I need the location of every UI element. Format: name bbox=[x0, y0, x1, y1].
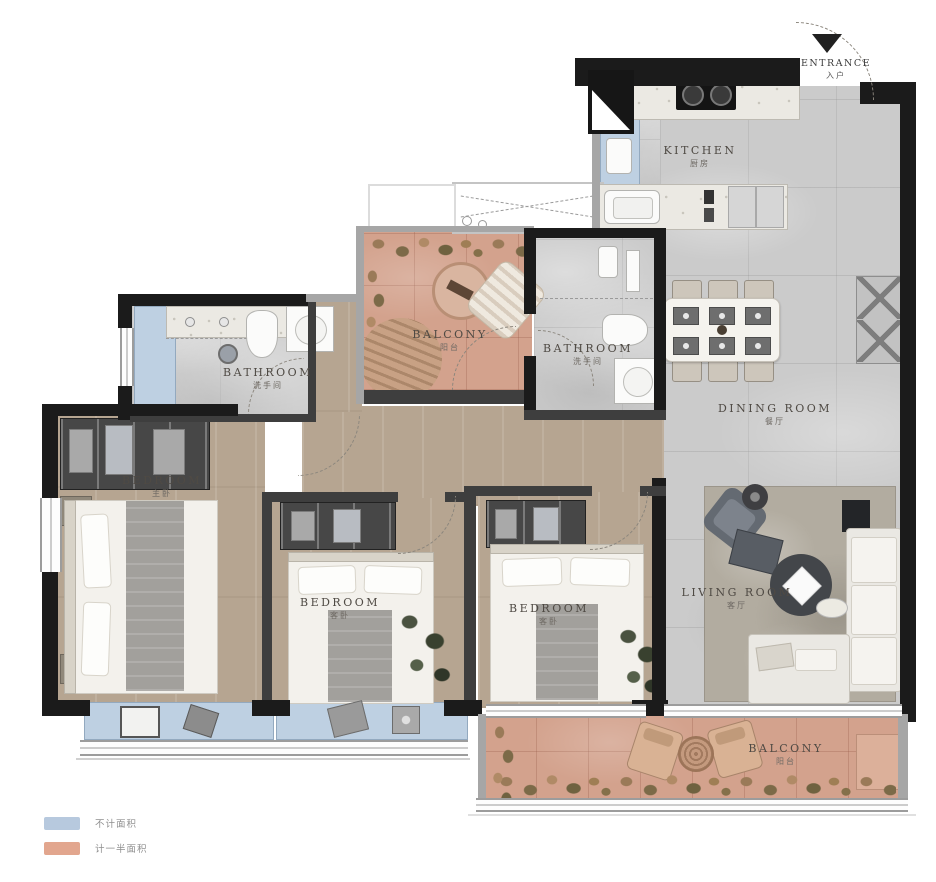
room-label-bedroom-mid: BEDROOM 客卧 bbox=[300, 596, 380, 621]
bed-headboard bbox=[64, 500, 76, 694]
wall-bathroom-mid-left-b bbox=[524, 356, 536, 418]
plant-bedroom-mid bbox=[388, 598, 460, 694]
wall-bathroom-mid-right bbox=[654, 228, 666, 414]
kitchen-sink-basin bbox=[613, 197, 653, 219]
bed-runner bbox=[328, 610, 392, 702]
shower-partition-mid bbox=[540, 298, 658, 299]
stove-burner bbox=[710, 84, 732, 106]
legend-label-uncounted: 不计面积 bbox=[95, 816, 137, 830]
bathroom-left-label-cn: 洗手间 bbox=[223, 381, 313, 391]
floor-plan: ENTRANCE 入户 bbox=[0, 0, 936, 882]
balcony-bottom-label-cn: 阳台 bbox=[748, 757, 823, 767]
chaise-pillow bbox=[756, 643, 795, 672]
wall-bedroom-mid-top-a bbox=[268, 492, 398, 502]
door-arc-line bbox=[398, 496, 456, 554]
wall-bedroom-divider-1 bbox=[262, 492, 272, 712]
kitchen-shaft-wedge bbox=[592, 90, 630, 130]
room-label-balcony-top: BALCONY 阳台 bbox=[412, 328, 487, 353]
wardrobe-item bbox=[291, 511, 315, 541]
floor-lamp bbox=[816, 598, 848, 618]
bedroom-master-label-cn: 主卧 bbox=[122, 489, 202, 499]
entrance-label: ENTRANCE 入户 bbox=[801, 58, 871, 81]
window-living-balcony bbox=[664, 704, 902, 718]
wardrobe-item bbox=[333, 509, 361, 543]
ac-platform-small bbox=[368, 184, 456, 232]
sofa-chaise bbox=[748, 634, 850, 704]
balcony-tray bbox=[446, 279, 474, 300]
ac-circle bbox=[462, 216, 472, 226]
placemat bbox=[745, 337, 771, 355]
bay-decor-frame bbox=[120, 706, 160, 738]
bathroom-left-counter bbox=[166, 306, 302, 338]
shower-control bbox=[598, 246, 618, 278]
legend-swatch-salmon bbox=[44, 842, 80, 855]
balcony-top-plants bbox=[364, 232, 530, 262]
side-table bbox=[742, 484, 768, 510]
balcony-top-label-cn: 阳台 bbox=[412, 343, 487, 353]
wall-right bbox=[900, 82, 916, 722]
legend-swatch-blue bbox=[44, 817, 80, 830]
bathroom-mid-label-en: BATHROOM bbox=[543, 342, 633, 355]
wall-bathroom-left-right bbox=[308, 296, 316, 422]
legend-item-half-area: 计一半面积 bbox=[44, 841, 148, 855]
bed-pillow bbox=[364, 565, 423, 595]
window-master-left bbox=[40, 498, 62, 572]
room-label-living: LIVING ROOM 客厅 bbox=[682, 586, 793, 611]
placemat bbox=[673, 337, 699, 355]
kitchen-label-cn: 厨房 bbox=[663, 159, 736, 169]
dining-label-cn: 餐厅 bbox=[718, 417, 832, 427]
wall-bay-stub-2 bbox=[444, 700, 482, 716]
bedroom-master-door-arc bbox=[298, 414, 360, 476]
faucet-icon bbox=[185, 317, 195, 327]
bedroom-master-label-en: BEDROOM bbox=[122, 474, 202, 487]
cabinet-x-door bbox=[857, 277, 903, 319]
wall-bathroom-mid-top bbox=[524, 228, 664, 238]
kitchen-label-en: KITCHEN bbox=[663, 144, 736, 157]
bay-window-left bbox=[84, 702, 274, 740]
balcony-side-table bbox=[678, 736, 714, 772]
sill-line-balcony bbox=[468, 814, 916, 816]
bedroom-right-door-arc bbox=[590, 492, 648, 550]
balcony-bottom-plant-corner bbox=[486, 718, 520, 802]
shower-partition bbox=[166, 338, 252, 339]
placemat bbox=[709, 337, 735, 355]
wall-balcony-top-bottom bbox=[358, 390, 534, 404]
room-label-bathroom-left: BATHROOM 洗手间 bbox=[223, 366, 313, 391]
bay-window-mid bbox=[276, 702, 468, 740]
room-label-bedroom-right: BEDROOM 客卧 bbox=[509, 602, 589, 627]
bed-pillow bbox=[298, 565, 357, 595]
window-bay-left bbox=[80, 740, 276, 756]
bedroom-mid-label-en: BEDROOM bbox=[300, 596, 380, 609]
room-label-dining: DINING ROOM 餐厅 bbox=[718, 402, 832, 427]
wall-bathroom-left-top bbox=[118, 294, 314, 306]
room-label-kitchen: KITCHEN 厨房 bbox=[663, 144, 736, 169]
bed-pillow bbox=[80, 513, 112, 588]
legend: 不计面积 计一半面积 bbox=[44, 816, 148, 866]
sink-bowl bbox=[623, 367, 653, 397]
wardrobe-item bbox=[533, 507, 559, 541]
wall-bathroom-mid-bottom bbox=[524, 410, 666, 420]
sofa-cushion bbox=[851, 585, 897, 635]
wardrobe-mid bbox=[280, 502, 396, 550]
gas-meter-icon bbox=[704, 208, 714, 222]
living-label-cn: 客厅 bbox=[682, 601, 793, 611]
wall-master-bottom-corner bbox=[42, 700, 90, 716]
wall-balcony-top-left bbox=[356, 228, 364, 404]
door-arc-line bbox=[298, 414, 360, 476]
wall-hall-top bbox=[306, 294, 364, 302]
door-arc-line bbox=[590, 492, 648, 550]
bed-blanket bbox=[126, 501, 184, 691]
bed-pillow bbox=[81, 602, 112, 677]
sill-line-mid bbox=[270, 758, 470, 760]
legend-item-uncounted-area: 不计面积 bbox=[44, 816, 148, 830]
fridge bbox=[728, 186, 784, 228]
entrance-arrow-icon bbox=[812, 34, 842, 53]
wall-master-top bbox=[42, 404, 238, 416]
balcony-bottom-label-en: BALCONY bbox=[748, 742, 823, 755]
bay-decor-box bbox=[392, 706, 420, 734]
bedroom-mid-label-cn: 客卧 bbox=[300, 611, 380, 621]
toilet-left bbox=[246, 310, 278, 358]
room-label-bedroom-master: BEDROOM 主卧 bbox=[122, 474, 202, 499]
wall-bedroom-divider-2 bbox=[464, 486, 476, 712]
window-bathroom-left bbox=[120, 328, 134, 386]
legend-label-half-area: 计一半面积 bbox=[95, 841, 148, 855]
wall-living-divider bbox=[652, 478, 666, 714]
kitchen-shaft bbox=[588, 70, 634, 134]
balcony-bottom-plants bbox=[492, 768, 896, 802]
wall-balcony-top-top bbox=[356, 226, 534, 232]
room-label-balcony-bottom: BALCONY 阳台 bbox=[748, 742, 823, 767]
wardrobe-item bbox=[495, 509, 517, 539]
placemat bbox=[745, 307, 771, 325]
wall-bedroom-right-top-a bbox=[470, 486, 592, 496]
bed-pillow bbox=[502, 557, 563, 587]
wall-balcony-bottom-right bbox=[898, 714, 908, 806]
entrance-label-en: ENTRANCE bbox=[801, 58, 871, 69]
wall-bathroom-left-corner-a bbox=[118, 294, 132, 328]
sofa-cushion bbox=[851, 537, 897, 583]
wardrobe-right bbox=[486, 500, 586, 548]
wall-bay-stub-1 bbox=[252, 700, 290, 716]
wall-bathroom-mid-left-a bbox=[524, 234, 536, 314]
living-label-en: LIVING ROOM bbox=[682, 586, 793, 599]
balcony-chair-back bbox=[642, 727, 674, 748]
centerpiece bbox=[717, 325, 727, 335]
kitchen-sink bbox=[604, 190, 660, 224]
stove-burner bbox=[682, 84, 704, 106]
wardrobe-item bbox=[153, 429, 185, 475]
hallway-cabinet bbox=[856, 276, 904, 364]
window-bay-mid bbox=[272, 740, 468, 756]
faucet-icon bbox=[219, 317, 229, 327]
bedroom-right-label-cn: 客卧 bbox=[509, 617, 589, 627]
chaise-pillow bbox=[795, 649, 837, 671]
sill-line-left bbox=[76, 758, 280, 760]
window-bedroom-right-balcony bbox=[486, 704, 646, 718]
dining-table bbox=[664, 298, 780, 362]
bedroom-mid-door-arc bbox=[398, 496, 456, 554]
window-balcony-bottom bbox=[476, 798, 908, 812]
bed-pillow bbox=[570, 557, 631, 587]
utility-basin bbox=[606, 138, 632, 174]
shower-head-icon bbox=[218, 344, 238, 364]
sofa-cushion bbox=[851, 637, 897, 685]
bathroom-mid-label-cn: 洗手间 bbox=[543, 357, 633, 367]
gas-meter-icon bbox=[704, 190, 714, 204]
cabinet-x-door bbox=[857, 320, 903, 362]
placemat bbox=[709, 307, 735, 325]
balcony-top-label-en: BALCONY bbox=[412, 328, 487, 341]
sofa-main bbox=[846, 528, 902, 692]
balcony-top-plant-left bbox=[362, 262, 388, 332]
bed-master bbox=[64, 500, 216, 692]
balcony-chair-back bbox=[714, 726, 746, 746]
wardrobe-item bbox=[69, 429, 93, 473]
shower-niche bbox=[626, 250, 640, 292]
bathroom-left-label-en: BATHROOM bbox=[223, 366, 313, 379]
entrance-label-cn: 入户 bbox=[801, 70, 871, 81]
dining-label-en: DINING ROOM bbox=[718, 402, 832, 415]
room-label-bathroom-mid: BATHROOM 洗手间 bbox=[543, 342, 633, 367]
wardrobe-item bbox=[105, 425, 133, 475]
placemat bbox=[673, 307, 699, 325]
wall-balcony-bottom-left bbox=[478, 714, 486, 806]
bedroom-right-label-en: BEDROOM bbox=[509, 602, 589, 615]
